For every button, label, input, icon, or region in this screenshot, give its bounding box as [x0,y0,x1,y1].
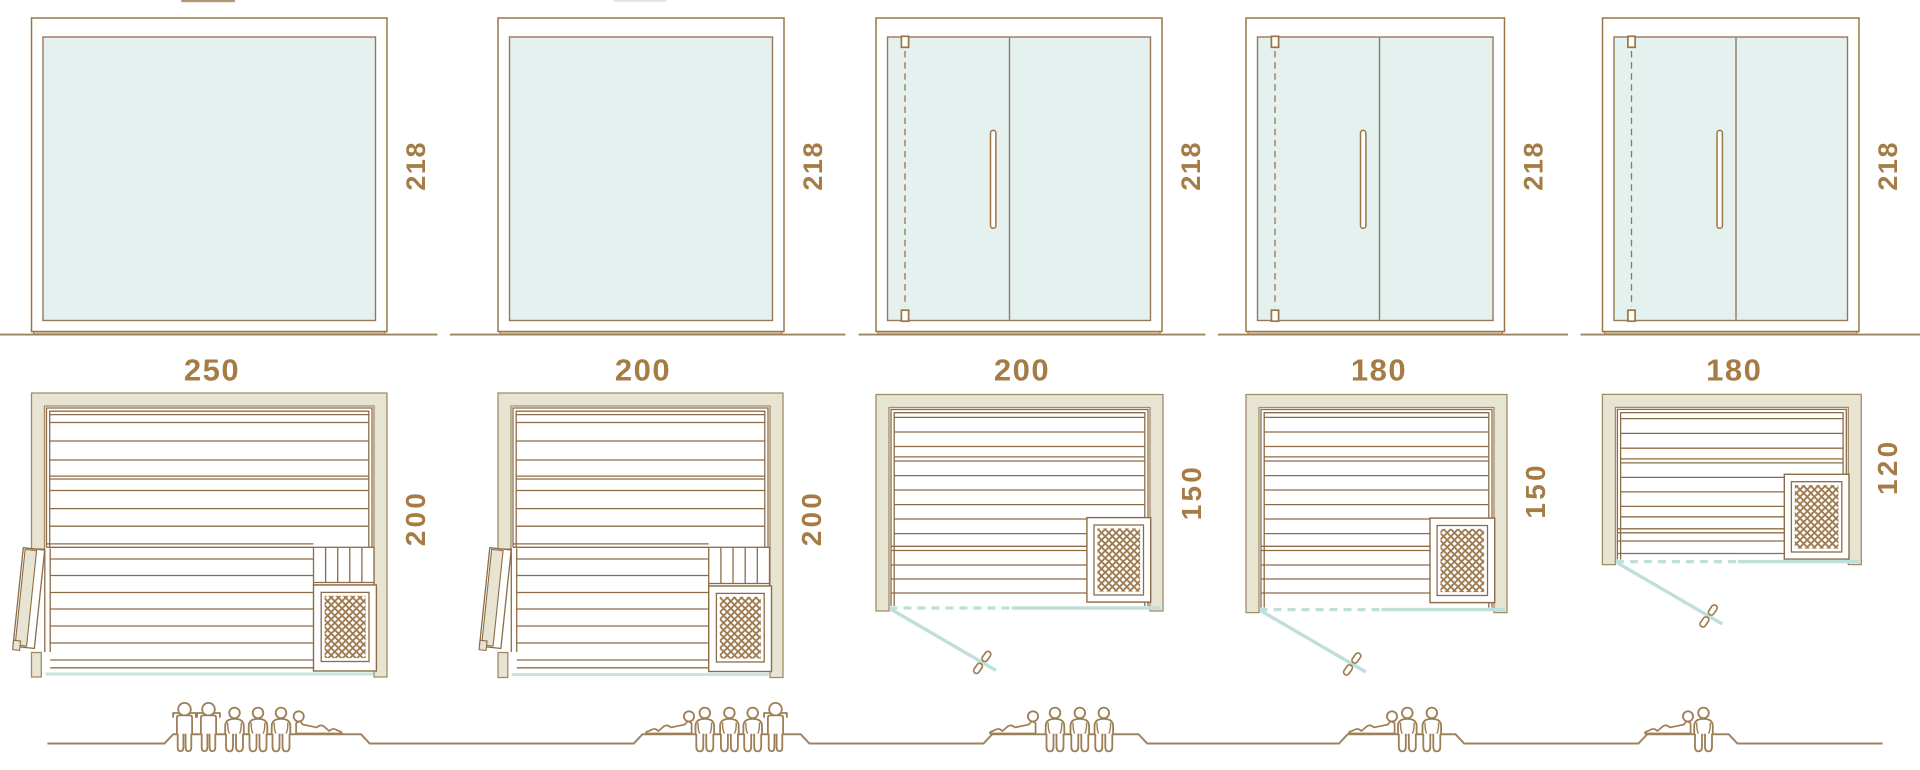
svg-text:218: 218 [798,141,828,191]
svg-text:218: 218 [1176,141,1206,191]
svg-text:250: 250 [184,353,240,388]
svg-text:150: 150 [1520,462,1551,518]
svg-text:200: 200 [994,353,1050,388]
svg-text:150: 150 [1176,464,1207,520]
svg-text:180: 180 [1706,353,1762,388]
svg-text:218: 218 [1519,141,1549,191]
svg-text:218: 218 [1873,141,1903,191]
svg-text:180: 180 [1351,353,1407,388]
svg-text:200: 200 [796,490,827,546]
svg-text:200: 200 [400,490,431,546]
svg-text:218: 218 [401,141,431,191]
svg-text:120: 120 [1872,439,1903,495]
svg-text:200: 200 [615,353,671,388]
